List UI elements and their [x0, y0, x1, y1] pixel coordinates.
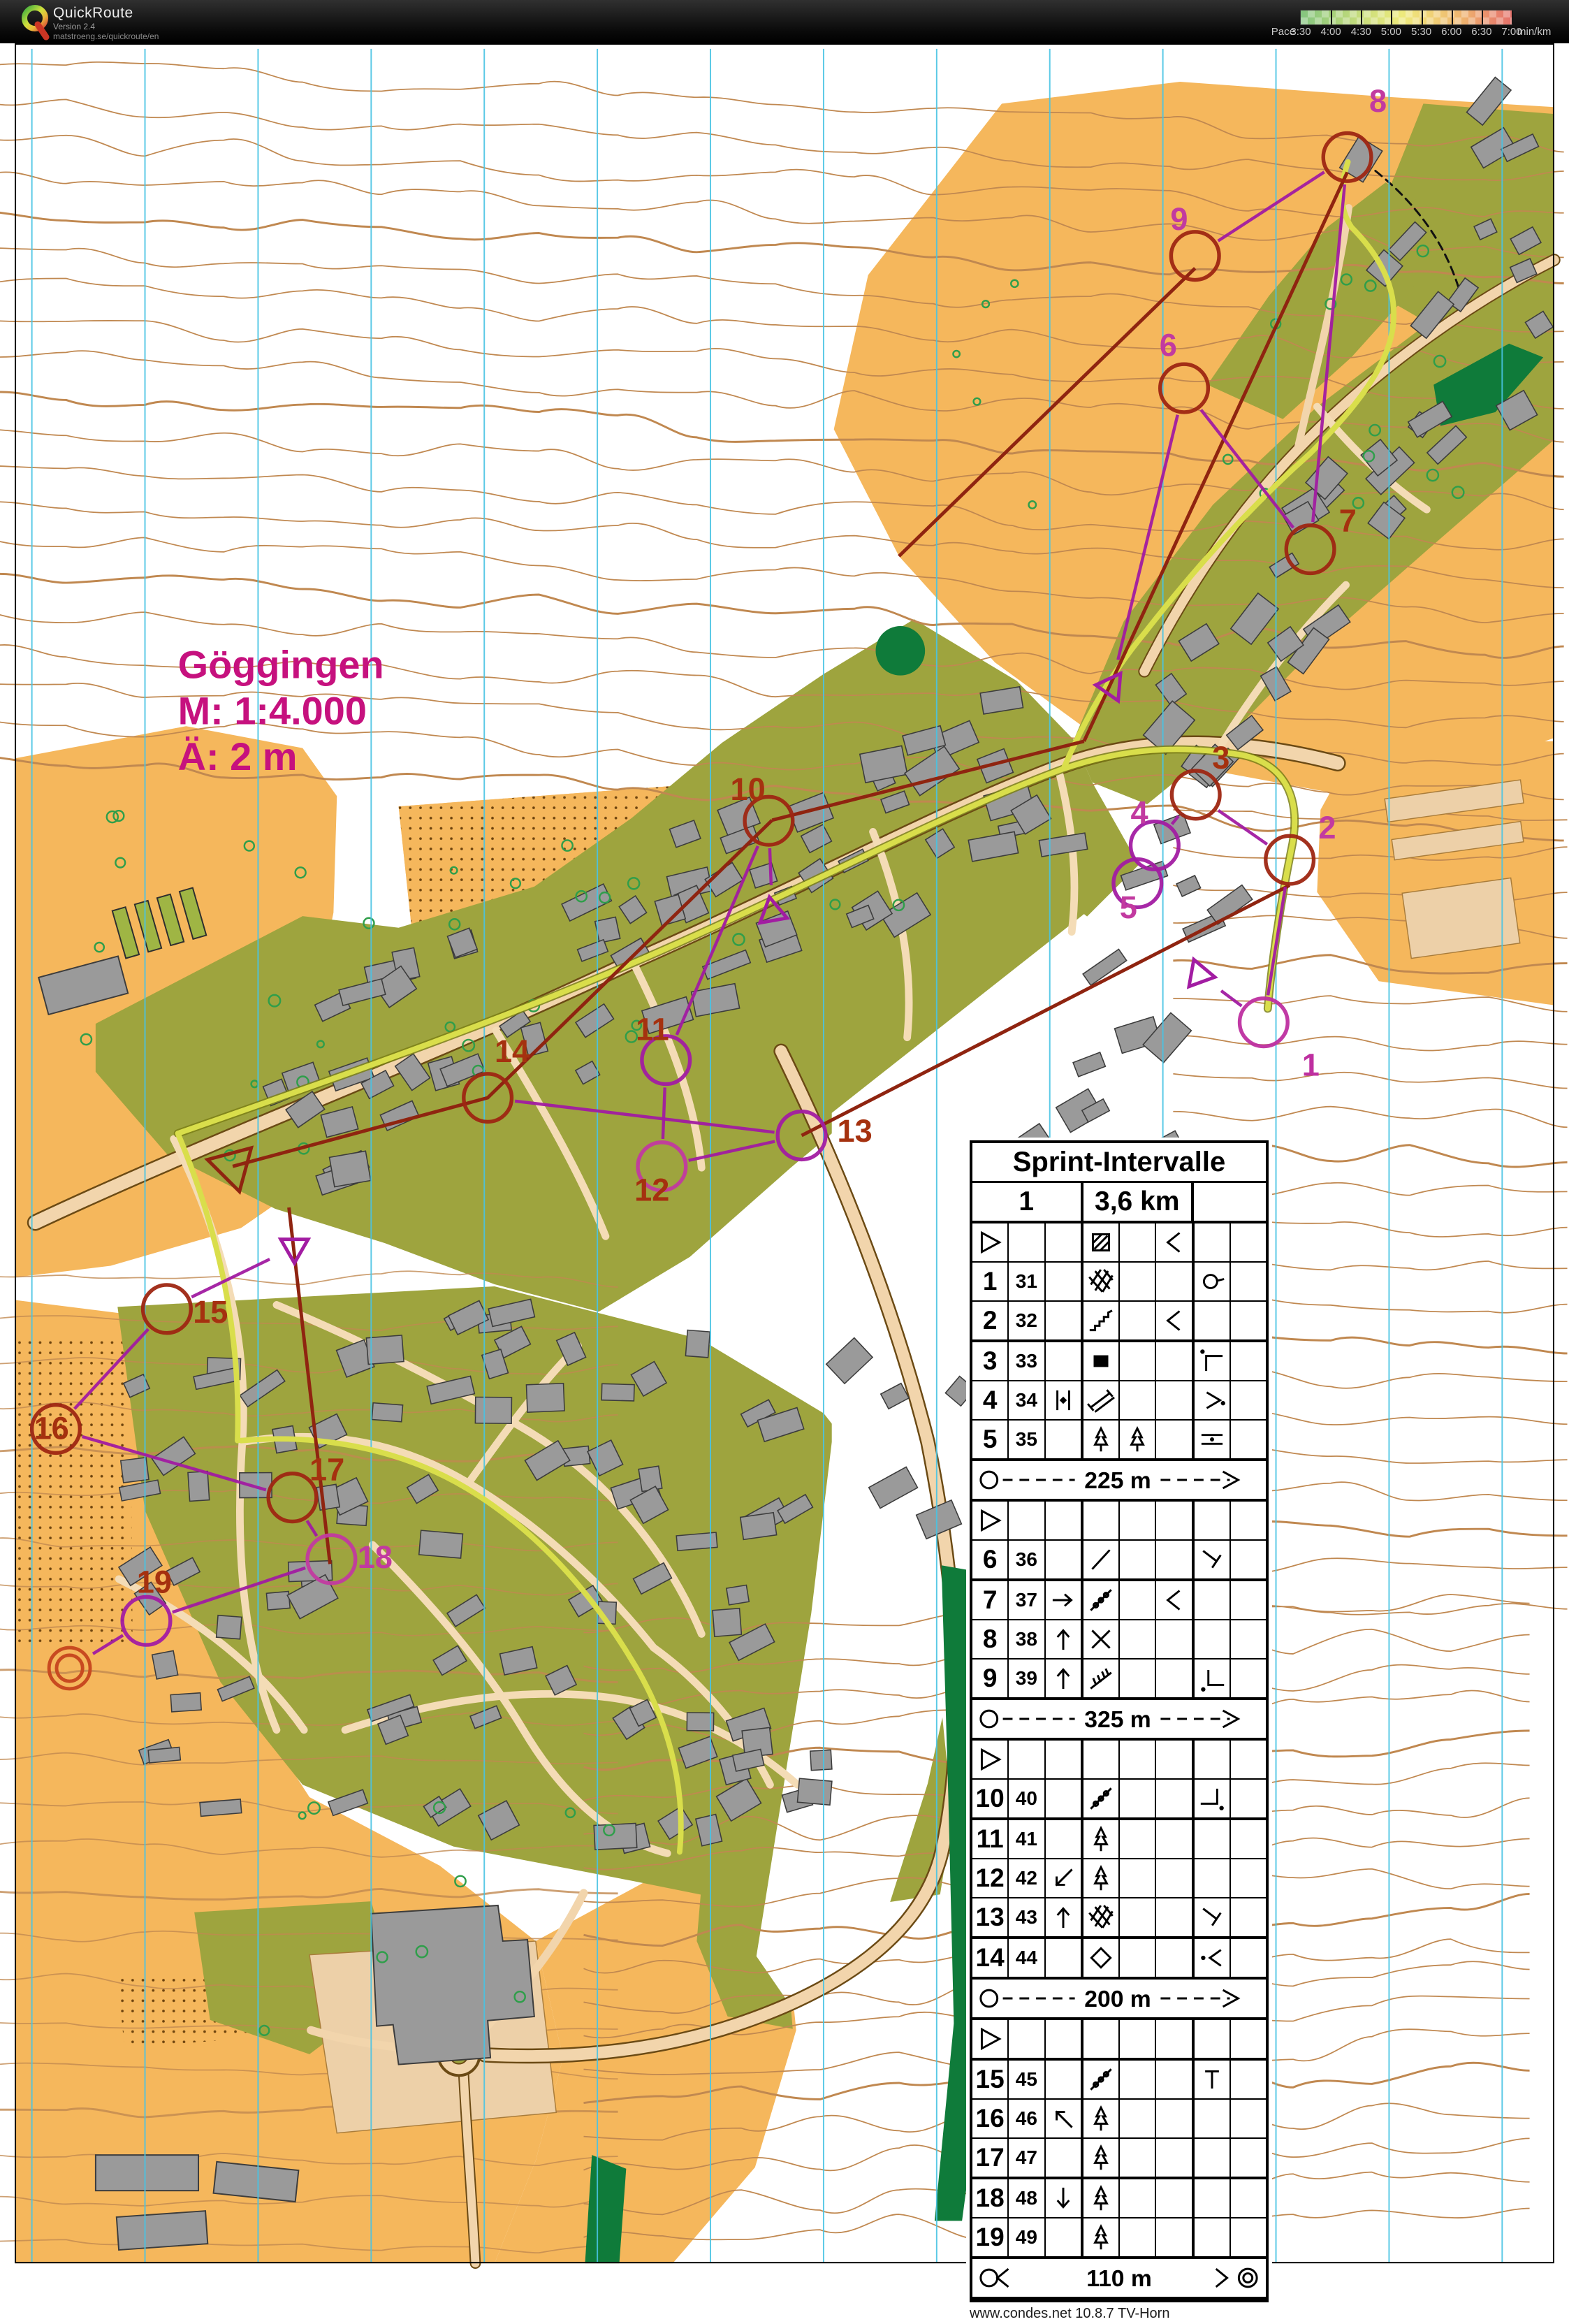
diamond-open-icon	[1086, 1943, 1116, 1973]
finish-distance-graphic: 110 m	[972, 2260, 1266, 2295]
control-number: 19	[972, 2218, 1009, 2256]
desc-col-f	[1156, 1660, 1194, 1697]
desc-col-e	[1120, 1502, 1156, 1539]
control-code: 48	[1009, 2179, 1045, 2217]
desc-col-d	[1083, 1381, 1120, 1419]
desc-col-f	[1156, 1381, 1194, 1419]
pace-tick	[1361, 10, 1362, 24]
desc-col-g	[1195, 1581, 1231, 1619]
pace-tick	[1391, 10, 1392, 24]
desc-col-c	[1046, 1620, 1083, 1658]
tree-icon	[1086, 1425, 1116, 1454]
desc-col-h	[1231, 1859, 1266, 1897]
control-number: 14	[972, 1939, 1009, 1977]
map-title-line: M: 1:4.000	[178, 688, 367, 732]
desc-col-h	[1231, 2020, 1266, 2058]
control-number: 6	[972, 1541, 1009, 1578]
desc-col-e	[1120, 1660, 1156, 1697]
desc-col-g	[1195, 2179, 1231, 2217]
between-bars-icon	[1049, 1386, 1078, 1415]
desc-col-c	[1046, 1541, 1083, 1578]
desc-col-f	[1156, 1620, 1194, 1658]
control-number: 5	[972, 1421, 1009, 1458]
desc-col-e	[1120, 1939, 1156, 1977]
desc-col-g	[1195, 1898, 1231, 1936]
start-row	[972, 1741, 1266, 1780]
desc-col-h	[1231, 1541, 1266, 1578]
control-number: 15	[972, 2061, 1009, 2098]
desc-col-h	[1231, 1820, 1266, 1858]
control-number-label: 10	[730, 771, 765, 807]
control-row: 939	[972, 1660, 1266, 1700]
desc-col-c	[1046, 1820, 1083, 1858]
desc-col-f	[1156, 2020, 1194, 2058]
start-row-symbol	[972, 1741, 1009, 1778]
arrow-north-icon	[1049, 1664, 1078, 1693]
quickroute-logo-icon	[17, 3, 54, 41]
control-number-label: 18	[358, 1539, 393, 1575]
sheet-course-row: 1 3,6 km	[972, 1183, 1266, 1223]
svg-text:325 m: 325 m	[1084, 1707, 1151, 1733]
desc-col-h	[1231, 1620, 1266, 1658]
map-title-line: Göggingen	[178, 643, 384, 687]
desc-col-c	[1046, 1741, 1083, 1778]
desc-col-d	[1083, 1741, 1120, 1778]
desc-col-c	[1046, 1223, 1083, 1261]
title-bar: QuickRoute Version 2.4 matstroeng.se/qui…	[0, 0, 1569, 43]
control-row: 1949	[972, 2218, 1266, 2259]
desc-col-g	[1195, 1541, 1231, 1578]
desc-col-c	[1046, 1263, 1083, 1300]
desc-col-f	[1156, 1581, 1194, 1619]
desc-col-c	[1046, 2218, 1083, 2256]
pace-tick-label: 4:00	[1320, 26, 1341, 38]
desc-col-h	[1231, 1263, 1266, 1300]
control-code: 36	[1009, 1541, 1045, 1578]
desc-col-f	[1156, 1898, 1194, 1936]
pace-label: Pace	[1245, 26, 1295, 38]
desc-col-e	[1120, 1342, 1156, 1380]
control-row: 1646	[972, 2100, 1266, 2139]
desc-col-g	[1195, 1421, 1231, 1458]
control-number: 8	[972, 1620, 1009, 1658]
desc-col-g	[1195, 2218, 1231, 2256]
desc-col-d	[1083, 2139, 1120, 2177]
desc-col-g	[1195, 2020, 1231, 2058]
desc-col-f	[1156, 1741, 1194, 1778]
control-number-label: 11	[636, 1012, 669, 1047]
desc-col-h	[1231, 1660, 1266, 1697]
control-number-label: 16	[34, 1411, 69, 1446]
bridge-icon	[1086, 1386, 1116, 1415]
desc-col-h	[1231, 2139, 1266, 2177]
desc-col-h	[1231, 1581, 1266, 1619]
map-title-line: Ä: 2 m	[178, 734, 298, 778]
desc-col-g	[1195, 1780, 1231, 1817]
chevron-left-icon	[1159, 1228, 1188, 1257]
desc-col-f	[1156, 1780, 1194, 1817]
start-icon	[975, 1506, 1005, 1535]
map-canvas[interactable]: 12345678910111213141516171819 GöggingenM…	[0, 43, 1569, 2306]
start-row-symbol	[972, 2020, 1009, 2058]
desc-col-f	[1156, 1263, 1194, 1300]
desc-col-d	[1083, 1421, 1120, 1458]
desc-col-d	[1083, 2179, 1120, 2217]
control-row: 434	[972, 1381, 1266, 1421]
app-title: QuickRoute	[53, 5, 133, 22]
desc-col-g	[1195, 1939, 1231, 1977]
desc-col-d	[1083, 2100, 1120, 2137]
tree-icon	[1086, 2184, 1116, 2213]
desc-col-e	[1120, 2139, 1156, 2177]
line-end-icon	[1197, 1903, 1227, 1932]
svg-text:200 m: 200 m	[1084, 1987, 1151, 2012]
pace-tick-label: 6:00	[1441, 26, 1461, 38]
desc-col-c	[1046, 1581, 1083, 1619]
control-row: 131	[972, 1263, 1266, 1302]
section-distance-graphic: 225 m	[972, 1462, 1266, 1497]
desc-col-e	[1120, 1620, 1156, 1658]
control-number: 11	[972, 1820, 1009, 1858]
desc-col-d	[1083, 1502, 1120, 1539]
desc-col-h	[1231, 2061, 1266, 2098]
control-code: 43	[1009, 1898, 1045, 1936]
desc-col-h	[1231, 1342, 1266, 1380]
pace-tick-label: 4:30	[1351, 26, 1371, 38]
control-number-label: 5	[1120, 889, 1137, 925]
tree-icon	[1086, 2104, 1116, 2133]
control-number: 2	[972, 1302, 1009, 1339]
control-code: 33	[1009, 1342, 1045, 1380]
control-number: 17	[972, 2139, 1009, 2177]
corner-e-dot-icon	[1197, 1386, 1227, 1415]
control-row: 333	[972, 1342, 1266, 1381]
fence-icon	[1086, 1784, 1116, 1813]
control-row: 636	[972, 1541, 1266, 1581]
desc-col-e	[1120, 2218, 1156, 2256]
corner-sw-dot-icon	[1197, 1664, 1227, 1693]
desc-col-f	[1156, 2218, 1194, 2256]
control-code: 31	[1009, 1263, 1045, 1300]
pace-tick	[1512, 10, 1513, 24]
control-sheet-table: Sprint-Intervalle 1 3,6 km 1312323334345…	[970, 1140, 1269, 2302]
control-code: 40	[1009, 1780, 1045, 1817]
desc-col-d	[1083, 1939, 1120, 1977]
building-icon	[1086, 1346, 1116, 1376]
pace-tick	[1422, 10, 1423, 24]
start-row-symbol	[972, 1223, 1009, 1261]
desc-col-e	[1120, 1820, 1156, 1858]
pace-tick-label: 3:30	[1290, 26, 1311, 38]
tree-icon	[1123, 1425, 1152, 1454]
control-row: 838	[972, 1620, 1266, 1660]
control-code: 44	[1009, 1939, 1045, 1977]
desc-col-e	[1120, 1302, 1156, 1339]
control-row: 1141	[972, 1820, 1266, 1859]
desc-col-d	[1083, 1541, 1120, 1578]
desc-col-e	[1120, 2020, 1156, 2058]
control-row: 1343	[972, 1898, 1266, 1939]
desc-col-d	[1083, 1581, 1120, 1619]
control-code: 42	[1009, 1859, 1045, 1897]
desc-col-f	[1156, 2139, 1194, 2177]
thicket-icon	[1086, 1267, 1116, 1296]
desc-col-d	[1083, 2218, 1120, 2256]
control-number-label: 19	[137, 1564, 172, 1600]
desc-col-d	[1083, 1342, 1120, 1380]
desc-col-e	[1120, 2179, 1156, 2217]
desc-col-h	[1231, 1302, 1266, 1339]
desc-col-d	[1083, 1223, 1120, 1261]
pace-tick-label: 5:30	[1411, 26, 1431, 38]
control-row: 232	[972, 1302, 1266, 1342]
start-icon	[975, 1228, 1005, 1257]
desc-col-h	[1231, 1223, 1266, 1261]
control-number: 3	[972, 1342, 1009, 1380]
steps-slope-icon	[1086, 1664, 1116, 1693]
desc-col-h	[1231, 1898, 1266, 1936]
desc-col-f	[1156, 1302, 1194, 1339]
desc-col-e	[1120, 2100, 1156, 2137]
control-number-label: 15	[193, 1294, 228, 1330]
start-icon	[975, 2024, 1005, 2054]
course-number: 1	[972, 1183, 1083, 1221]
arrow-northwest-icon	[1049, 2104, 1078, 2133]
distance-row: 200 m	[972, 1980, 1266, 2020]
desc-col-c	[1046, 2139, 1083, 2177]
desc-col-g	[1195, 1381, 1231, 1419]
desc-col-f	[1156, 1820, 1194, 1858]
desc-col-g	[1195, 1342, 1231, 1380]
desc-col-g	[1195, 1820, 1231, 1858]
control-number-label: 2	[1318, 810, 1336, 845]
desc-col-f	[1156, 2061, 1194, 2098]
desc-col-e	[1120, 1859, 1156, 1897]
desc-col-d	[1083, 1898, 1120, 1936]
control-row: 1848	[972, 2179, 1266, 2218]
desc-col-h	[1231, 1780, 1266, 1817]
pace-tick	[1331, 10, 1332, 24]
section-distance-graphic: 200 m	[972, 1981, 1266, 2016]
desc-col-e	[1120, 1223, 1156, 1261]
desc-col-e	[1120, 1381, 1156, 1419]
desc-col-f	[1156, 1939, 1194, 1977]
app-version: Version 2.4	[53, 22, 95, 31]
control-number: 16	[972, 2100, 1009, 2137]
circle-tail-icon	[1197, 1267, 1227, 1296]
desc-col-g	[1195, 1741, 1231, 1778]
start-row	[972, 2020, 1266, 2061]
desc-col-f	[1156, 1502, 1194, 1539]
desc-col-c	[1046, 2061, 1083, 2098]
control-code: 39	[1009, 1660, 1045, 1697]
desc-col-f	[1156, 2100, 1194, 2137]
desc-col-g	[1195, 1620, 1231, 1658]
control-code: 38	[1009, 1620, 1045, 1658]
control-row: 737	[972, 1581, 1266, 1620]
sheet-title: Sprint-Intervalle	[972, 1143, 1266, 1183]
fence-icon	[1086, 1585, 1116, 1615]
control-code: 46	[1009, 2100, 1045, 2137]
stairs-icon	[1086, 1306, 1116, 1335]
desc-col-c	[1046, 1421, 1083, 1458]
pace-checker-overlay	[1301, 10, 1512, 24]
desc-col-d	[1083, 1620, 1120, 1658]
control-number: 9	[972, 1660, 1009, 1697]
desc-col-f	[1156, 1421, 1194, 1458]
control-code: 34	[1009, 1381, 1045, 1419]
control-code: 45	[1009, 2061, 1045, 2098]
desc-col-g	[1195, 1660, 1231, 1697]
chevron-left-icon	[1159, 1585, 1188, 1615]
crossing-x-icon	[1086, 1625, 1116, 1654]
control-row: 1242	[972, 1859, 1266, 1898]
control-number: 10	[972, 1780, 1009, 1817]
fence-icon	[1086, 2065, 1116, 2094]
desc-col-g	[1195, 2061, 1231, 2098]
desc-col-c	[1046, 1381, 1083, 1419]
control-number-label: 13	[838, 1113, 873, 1149]
desc-col-d	[1083, 1859, 1120, 1897]
chevron-left-icon	[1159, 1306, 1188, 1335]
desc-col-d	[1083, 1820, 1120, 1858]
control-number-label: 1	[1302, 1047, 1320, 1083]
between-lines-dot-icon	[1197, 1425, 1227, 1454]
desc-col-d	[1083, 1302, 1120, 1339]
desc-col-e	[1120, 1541, 1156, 1578]
tree-icon	[1086, 1824, 1116, 1854]
control-number-label: 6	[1160, 327, 1177, 363]
section-distance-graphic: 325 m	[972, 1701, 1266, 1736]
paved-area-icon	[1086, 1228, 1116, 1257]
arrow-east-icon	[1049, 1585, 1078, 1615]
desc-col-h	[1231, 1502, 1266, 1539]
control-code: 32	[1009, 1302, 1045, 1339]
desc-col-f	[1156, 1541, 1194, 1578]
desc-col-c	[1046, 1302, 1083, 1339]
control-code: 35	[1009, 1421, 1045, 1458]
start-row	[972, 1502, 1266, 1541]
desc-col-e	[1120, 1780, 1156, 1817]
tree-icon	[1086, 1864, 1116, 1893]
tree-icon	[1086, 2223, 1116, 2252]
desc-col-d	[1083, 2061, 1120, 2098]
distance-row: 225 m	[972, 1461, 1266, 1502]
dot-chevron-left-icon	[1197, 1943, 1227, 1973]
distance-row: 110 m	[972, 2259, 1266, 2300]
control-code: 49	[1009, 2218, 1045, 2256]
tree-icon	[1086, 2143, 1116, 2172]
distance-row: 325 m	[972, 1700, 1266, 1741]
desc-col-d	[1083, 1660, 1120, 1697]
t-junction-icon	[1197, 2065, 1227, 2094]
desc-col-g	[1195, 2139, 1231, 2177]
desc-col-c	[1046, 2179, 1083, 2217]
desc-col-e	[1120, 1741, 1156, 1778]
desc-col-c	[1046, 1939, 1083, 1977]
desc-col-h	[1231, 1381, 1266, 1419]
thicket-icon	[1086, 1903, 1116, 1932]
desc-col-h	[1231, 1939, 1266, 1977]
control-number-label: 4	[1131, 795, 1148, 831]
control-number-label: 12	[634, 1172, 669, 1207]
desc-col-c	[1046, 2100, 1083, 2137]
start-icon	[975, 1745, 1005, 1774]
desc-col-c	[1046, 2020, 1083, 2058]
svg-text:110 m: 110 m	[1086, 2266, 1152, 2292]
control-row: 535	[972, 1421, 1266, 1461]
desc-col-f	[1156, 1342, 1194, 1380]
desc-col-d	[1083, 1780, 1120, 1817]
pace-tick-label: 5:00	[1381, 26, 1401, 38]
control-number-label: 17	[309, 1452, 344, 1488]
control-code: 37	[1009, 1581, 1045, 1619]
control-row: 1545	[972, 2061, 1266, 2100]
start-row	[972, 1223, 1266, 1263]
desc-col-e	[1120, 1898, 1156, 1936]
desc-col-f	[1156, 1859, 1194, 1897]
pace-tick	[1482, 10, 1483, 24]
control-number-label: 8	[1369, 83, 1387, 119]
desc-col-h	[1231, 2100, 1266, 2137]
control-number: 4	[972, 1381, 1009, 1419]
arrow-southwest-icon	[1049, 1864, 1078, 1893]
control-number-label: 9	[1170, 201, 1188, 237]
desc-col-g	[1195, 2100, 1231, 2137]
desc-col-h	[1231, 1421, 1266, 1458]
pace-tick-label: 6:30	[1471, 26, 1491, 38]
arrow-north-icon	[1049, 1903, 1078, 1932]
control-row: 1040	[972, 1780, 1266, 1820]
desc-col-d	[1083, 2020, 1120, 2058]
desc-col-g	[1195, 1502, 1231, 1539]
desc-col-c	[1046, 1342, 1083, 1380]
corner-se-dot-icon	[1197, 1784, 1227, 1813]
control-row: 1747	[972, 2139, 1266, 2179]
desc-col-e	[1120, 1581, 1156, 1619]
diagonal-line-icon	[1086, 1545, 1116, 1574]
line-end-icon	[1197, 1545, 1227, 1574]
pace-tick	[1452, 10, 1453, 24]
desc-col-c	[1046, 1660, 1083, 1697]
desc-col-h	[1231, 1741, 1266, 1778]
arrow-north-icon	[1049, 1625, 1078, 1654]
arrow-south-icon	[1049, 2184, 1078, 2213]
desc-col-e	[1120, 1421, 1156, 1458]
pace-unit: min/km	[1517, 26, 1551, 38]
control-code: 47	[1009, 2139, 1045, 2177]
desc-col-g	[1195, 1223, 1231, 1261]
desc-col-f	[1156, 2179, 1194, 2217]
control-number: 7	[972, 1581, 1009, 1619]
start-row-symbol	[972, 1502, 1009, 1539]
desc-col-c	[1046, 1502, 1083, 1539]
desc-col-c	[1046, 1780, 1083, 1817]
control-number: 1	[972, 1263, 1009, 1300]
control-number-label: 3	[1212, 740, 1229, 776]
desc-col-e	[1120, 1263, 1156, 1300]
control-number: 18	[972, 2179, 1009, 2217]
app-url: matstroeng.se/quickroute/en	[53, 31, 159, 41]
control-code: 41	[1009, 1820, 1045, 1858]
control-number-label: 7	[1339, 503, 1357, 539]
desc-col-c	[1046, 1898, 1083, 1936]
control-row: 1444	[972, 1939, 1266, 1980]
desc-col-c	[1046, 1859, 1083, 1897]
corner-nw-dot-icon	[1197, 1346, 1227, 1376]
control-number-label: 14	[495, 1033, 530, 1069]
control-number: 13	[972, 1898, 1009, 1936]
